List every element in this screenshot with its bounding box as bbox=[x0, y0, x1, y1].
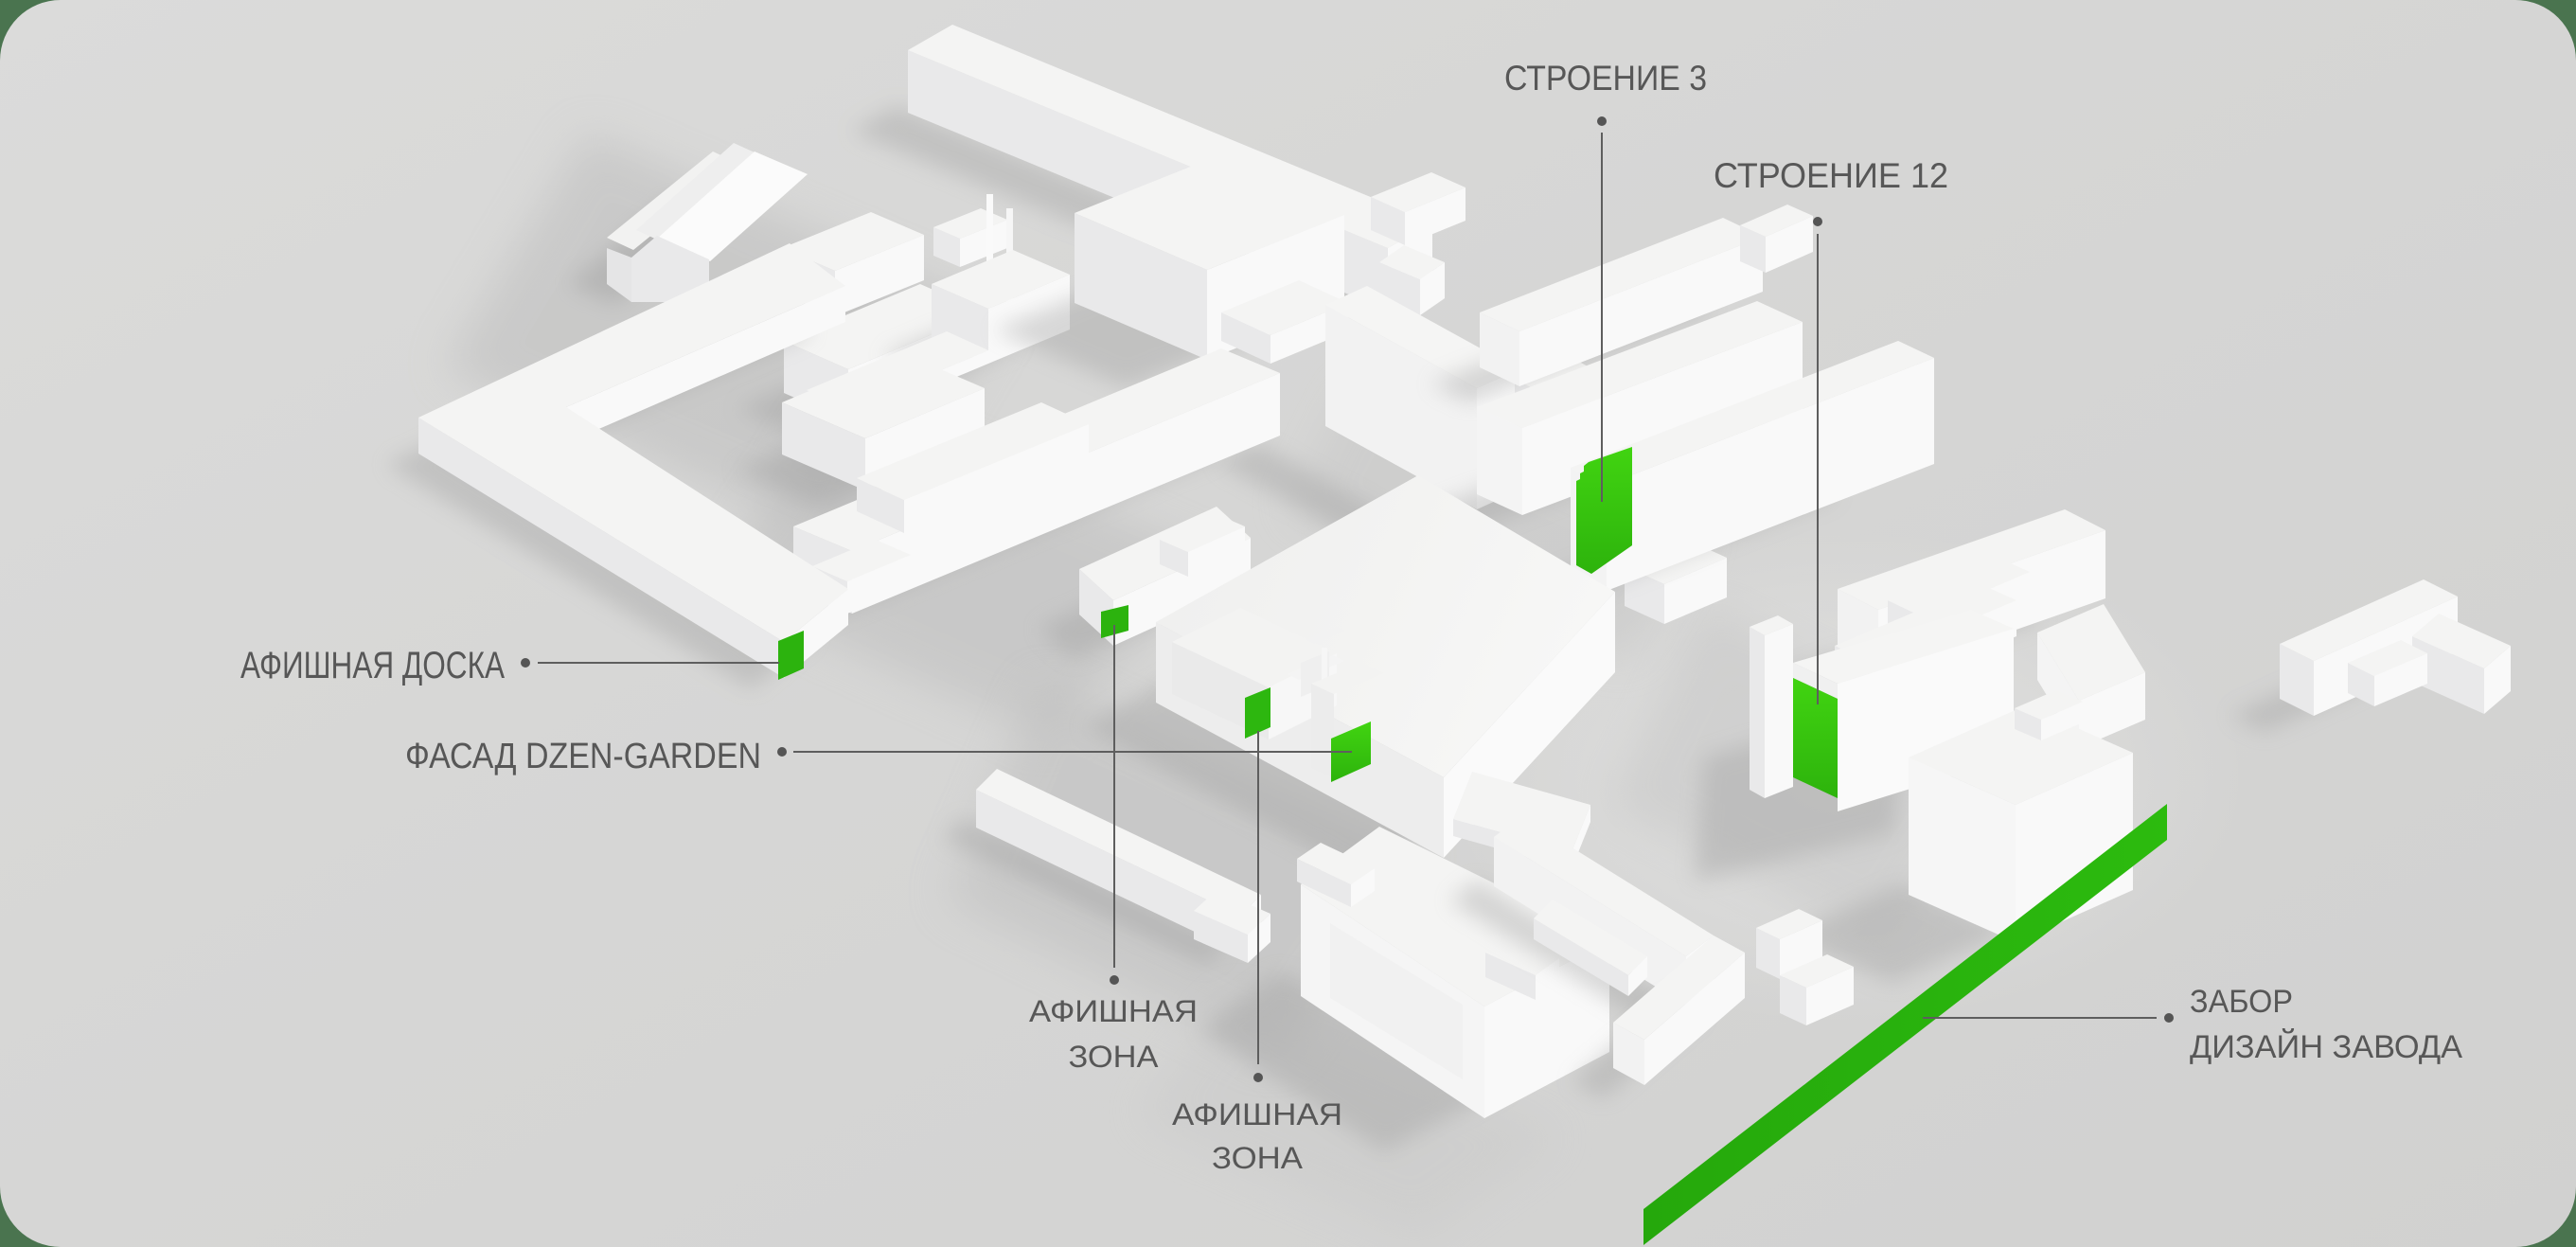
svg-text:ЗОНА: ЗОНА bbox=[1069, 1040, 1160, 1074]
svg-text:СТРОЕНИЕ 12: СТРОЕНИЕ 12 bbox=[1714, 156, 1948, 195]
svg-text:ЗОНА: ЗОНА bbox=[1212, 1141, 1304, 1175]
svg-text:АФИШНАЯ ДОСКА: АФИШНАЯ ДОСКА bbox=[240, 645, 505, 686]
svg-text:ЗАБОР: ЗАБОР bbox=[2190, 984, 2293, 1020]
svg-text:СТРОЕНИЕ 3: СТРОЕНИЕ 3 bbox=[1504, 59, 1707, 98]
svg-text:ФАСАД DZEN-GARDEN: ФАСАД DZEN-GARDEN bbox=[405, 737, 761, 776]
svg-text:ДИЗАЙН ЗАВОДА: ДИЗАЙН ЗАВОДА bbox=[2190, 1029, 2462, 1065]
svg-text:АФИШНАЯ: АФИШНАЯ bbox=[1172, 1097, 1342, 1131]
svg-text:АФИШНАЯ: АФИШНАЯ bbox=[1029, 994, 1198, 1028]
